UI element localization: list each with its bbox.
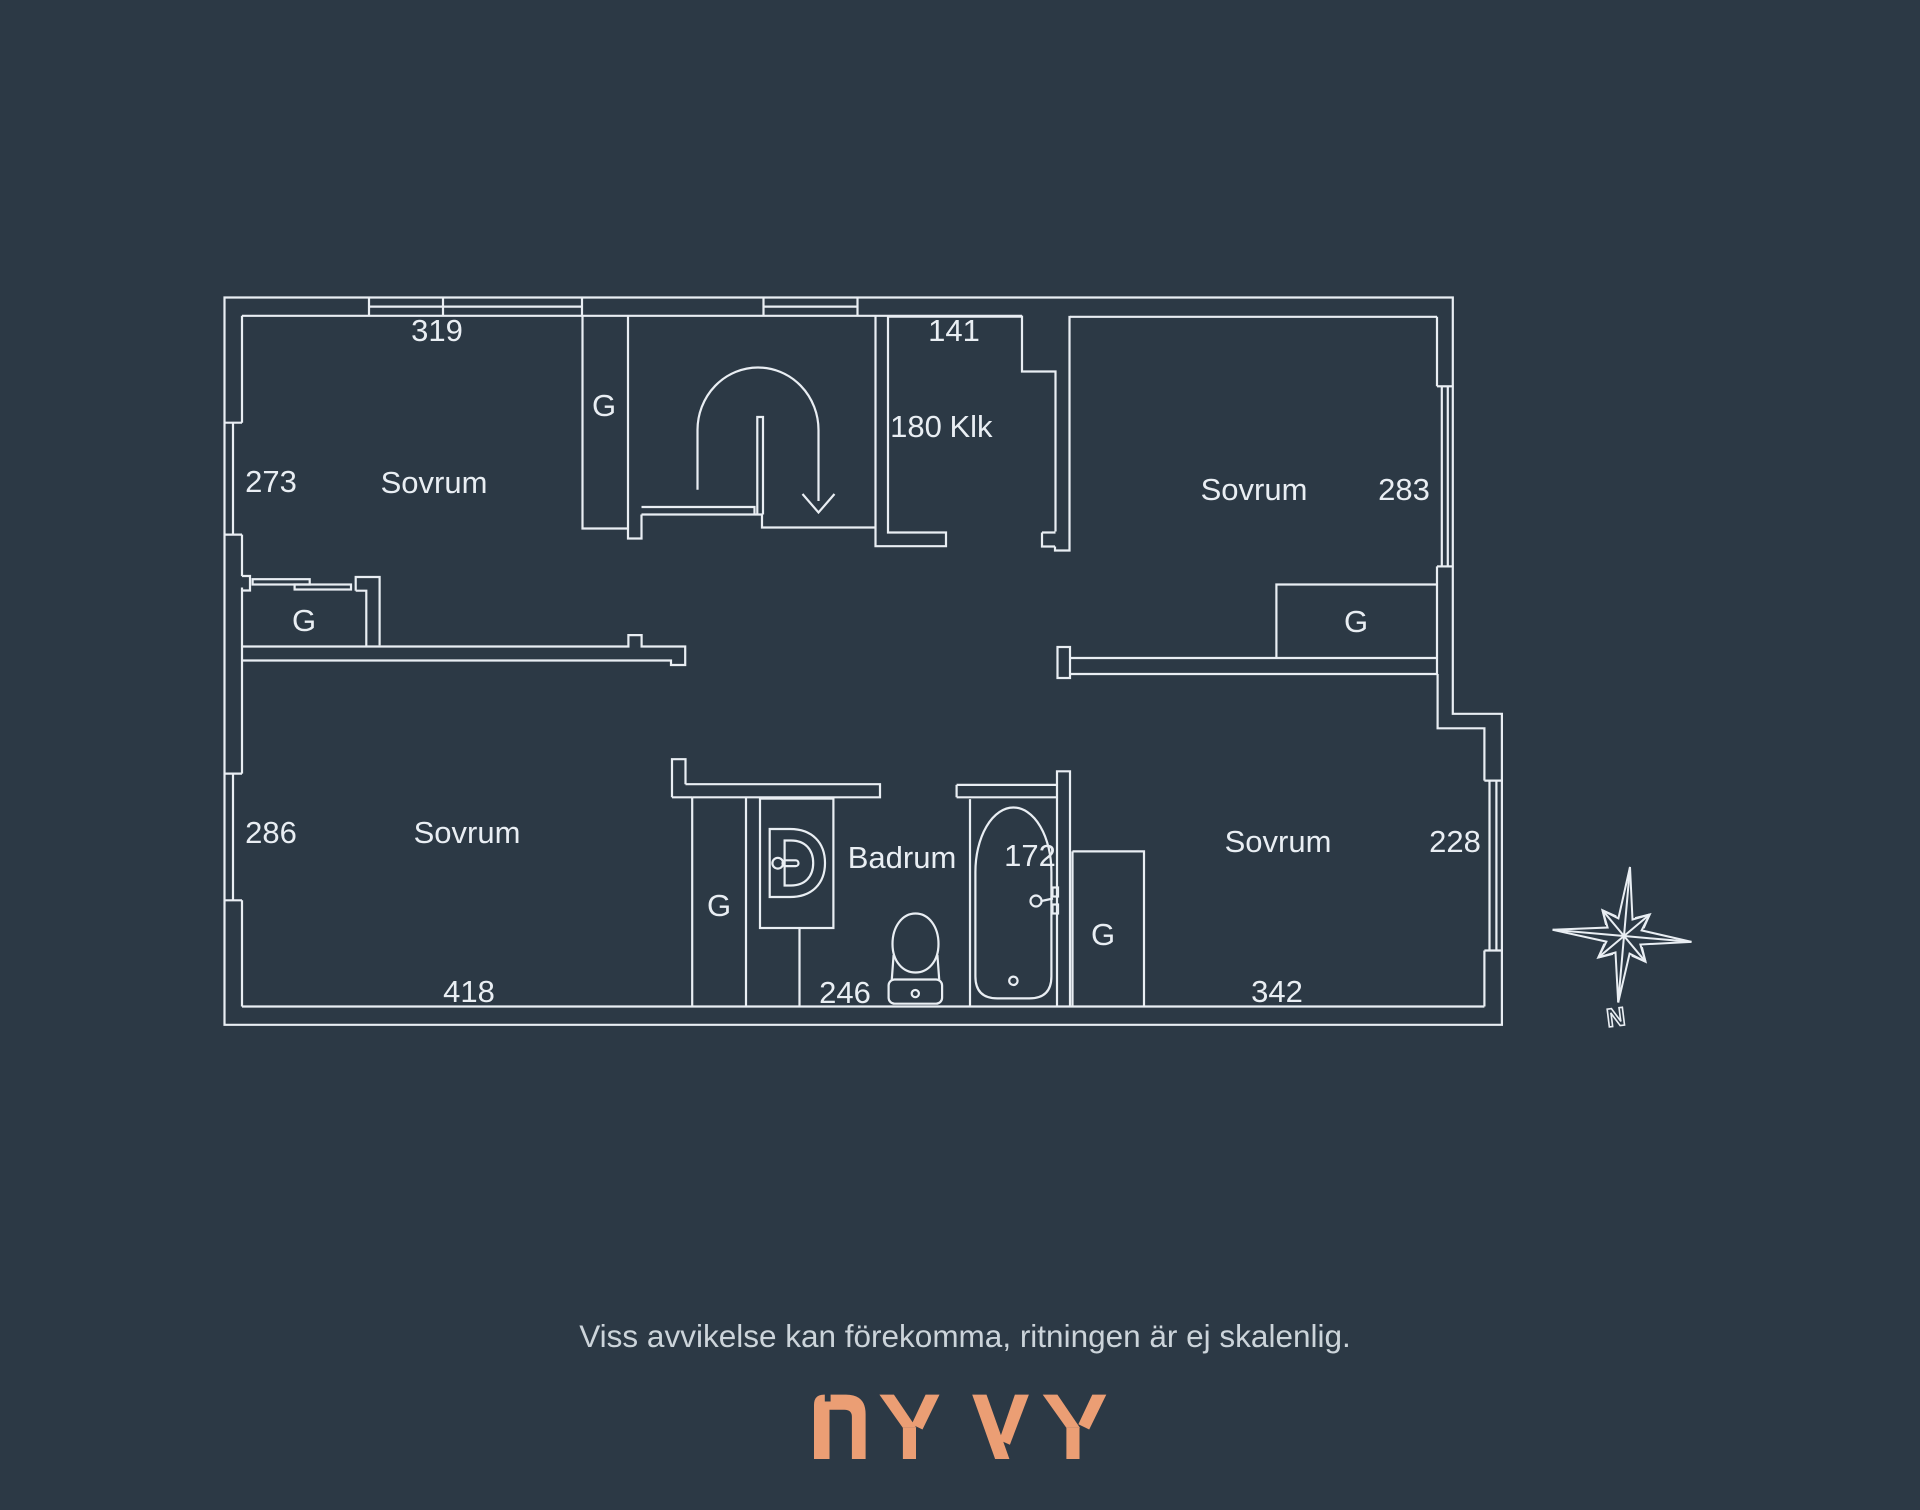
svg-text:286: 286 (245, 815, 297, 850)
svg-text:283: 283 (1378, 472, 1430, 507)
svg-text:273: 273 (245, 464, 297, 499)
svg-text:Klk: Klk (949, 409, 993, 444)
svg-text:319: 319 (411, 313, 463, 348)
svg-text:Viss avvikelse kan förekomma,: Viss avvikelse kan förekomma, ritningen … (579, 1318, 1351, 1354)
svg-text:Sovrum: Sovrum (1201, 472, 1308, 507)
svg-text:G: G (592, 388, 616, 423)
svg-text:G: G (1344, 604, 1368, 639)
svg-text:246: 246 (819, 975, 871, 1010)
svg-text:172: 172 (1004, 838, 1056, 873)
svg-text:N: N (1605, 1001, 1627, 1033)
svg-text:342: 342 (1251, 974, 1303, 1009)
svg-text:Sovrum: Sovrum (414, 815, 521, 850)
svg-text:G: G (1091, 917, 1115, 952)
svg-text:141: 141 (928, 313, 980, 348)
svg-text:Badrum: Badrum (848, 840, 957, 875)
svg-text:228: 228 (1429, 824, 1481, 859)
svg-text:Sovrum: Sovrum (381, 465, 488, 500)
svg-text:G: G (292, 603, 316, 638)
svg-text:G: G (707, 888, 731, 923)
svg-text:Sovrum: Sovrum (1225, 824, 1332, 859)
svg-text:418: 418 (443, 974, 495, 1009)
svg-text:180: 180 (890, 409, 942, 444)
